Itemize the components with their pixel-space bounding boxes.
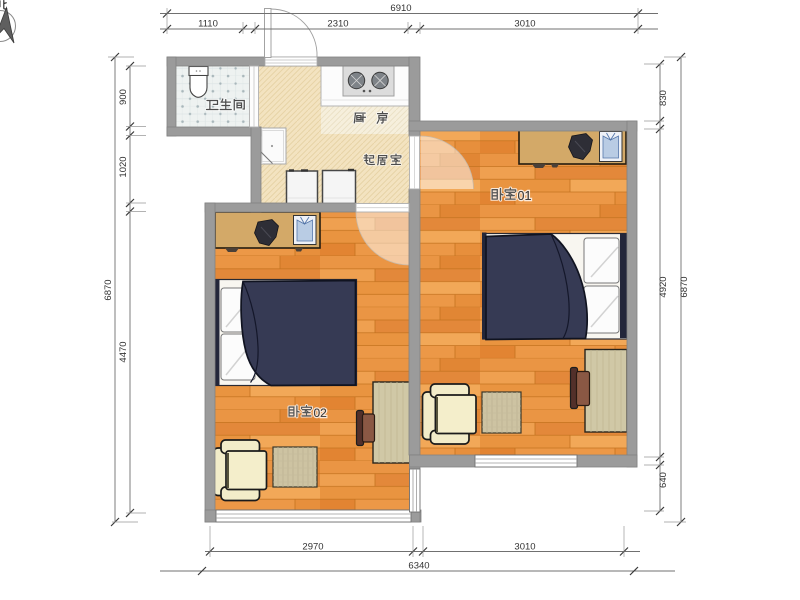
svg-text:1020: 1020 (118, 156, 129, 177)
svg-text:01: 01 (518, 189, 532, 203)
svg-text:640: 640 (658, 472, 669, 488)
svg-text:3010: 3010 (514, 19, 535, 30)
svg-text:4470: 4470 (118, 341, 129, 362)
svg-text:2310: 2310 (327, 19, 348, 30)
svg-text:900: 900 (118, 89, 129, 105)
svg-text:2970: 2970 (302, 542, 323, 553)
svg-text:4920: 4920 (658, 276, 669, 297)
svg-text:830: 830 (658, 90, 669, 106)
svg-text:02: 02 (314, 406, 328, 420)
svg-text:6340: 6340 (408, 561, 429, 572)
svg-text:3010: 3010 (514, 542, 535, 553)
svg-text:6910: 6910 (390, 3, 411, 14)
svg-text:6870: 6870 (679, 276, 690, 297)
svg-text:1110: 1110 (198, 19, 218, 30)
svg-text:6870: 6870 (103, 279, 114, 300)
